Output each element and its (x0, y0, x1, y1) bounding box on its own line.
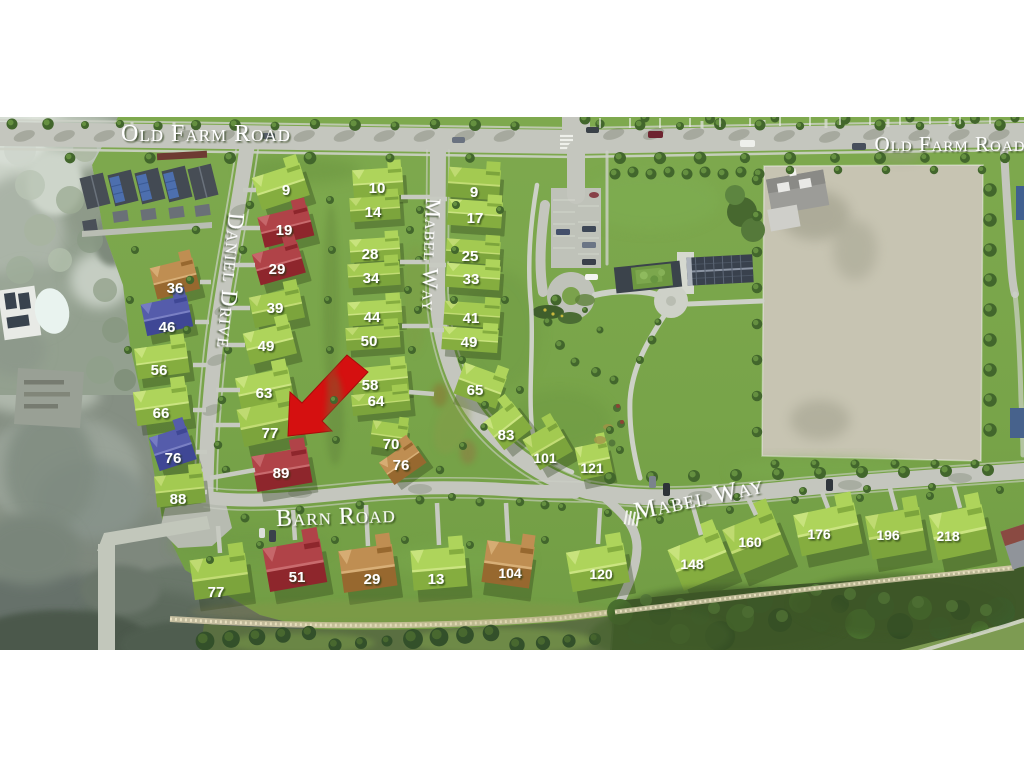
svg-text:77: 77 (208, 584, 225, 601)
svg-text:70: 70 (383, 436, 400, 453)
svg-text:17: 17 (467, 210, 484, 227)
svg-text:50: 50 (361, 333, 378, 350)
svg-text:66: 66 (153, 405, 170, 422)
svg-text:49: 49 (461, 334, 478, 351)
svg-text:88: 88 (170, 491, 187, 508)
svg-text:64: 64 (368, 393, 385, 410)
svg-text:29: 29 (269, 261, 286, 278)
svg-text:63: 63 (256, 385, 273, 402)
svg-text:41: 41 (463, 310, 480, 327)
svg-text:58: 58 (362, 377, 379, 394)
svg-text:29: 29 (364, 571, 381, 588)
svg-text:Barn Road: Barn Road (275, 502, 396, 532)
svg-text:25: 25 (462, 248, 479, 265)
svg-text:10: 10 (369, 180, 386, 197)
svg-text:Old Farm Road: Old Farm Road (121, 121, 291, 147)
svg-text:9: 9 (282, 182, 290, 199)
svg-text:49: 49 (258, 338, 275, 355)
svg-text:176: 176 (807, 526, 831, 542)
svg-text:218: 218 (936, 528, 960, 544)
svg-text:19: 19 (276, 222, 293, 239)
svg-text:121: 121 (580, 460, 604, 476)
svg-text:39: 39 (267, 300, 284, 317)
svg-text:44: 44 (364, 309, 381, 326)
svg-text:Old Farm Road: Old Farm Road (874, 132, 1024, 156)
svg-text:196: 196 (876, 527, 900, 543)
svg-text:51: 51 (289, 569, 306, 586)
svg-text:83: 83 (498, 427, 515, 444)
svg-text:Mabel Way: Mabel Way (417, 198, 446, 313)
svg-text:28: 28 (362, 246, 379, 263)
svg-text:148: 148 (680, 556, 704, 572)
svg-text:77: 77 (262, 425, 279, 442)
svg-text:33: 33 (463, 271, 480, 288)
svg-text:89: 89 (273, 465, 290, 482)
svg-text:120: 120 (589, 566, 613, 582)
svg-text:65: 65 (467, 382, 484, 399)
svg-text:104: 104 (498, 565, 522, 581)
svg-text:34: 34 (363, 270, 380, 287)
svg-text:56: 56 (151, 362, 168, 379)
svg-text:9: 9 (470, 184, 478, 201)
svg-text:76: 76 (165, 450, 182, 467)
svg-text:76: 76 (393, 457, 410, 474)
svg-text:101: 101 (533, 450, 557, 466)
svg-text:13: 13 (428, 571, 445, 588)
svg-text:160: 160 (738, 534, 762, 550)
svg-text:14: 14 (365, 204, 382, 221)
svg-text:36: 36 (167, 280, 184, 297)
svg-text:46: 46 (159, 319, 176, 336)
